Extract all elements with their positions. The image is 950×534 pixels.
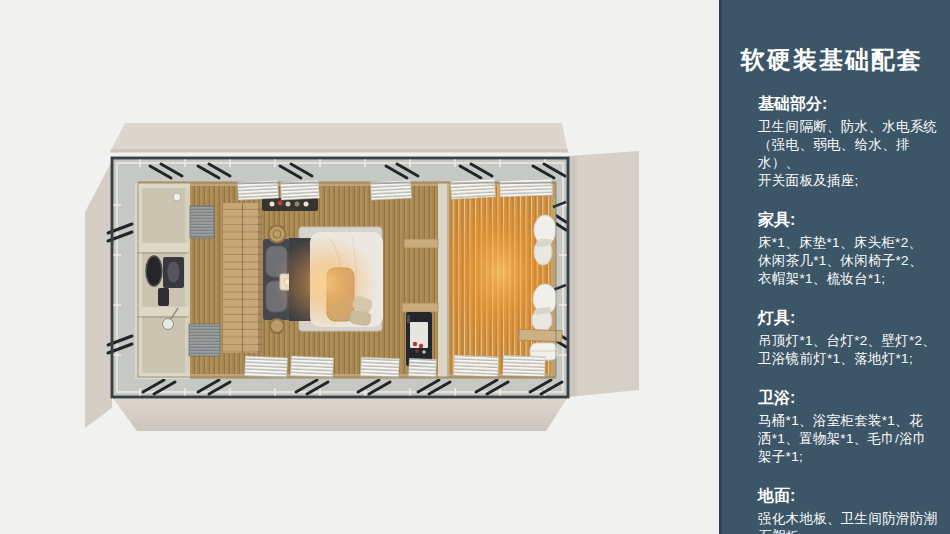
- section-basics: 基础部分: 卫生间隔断、防水、水电系统 （强电、弱电、给水、排水）、 开关面板及…: [758, 94, 938, 190]
- wicker-basket: [269, 226, 286, 243]
- section-flooring: 地面: 强化木地板、卫生间防滑防潮 石塑板;: [758, 486, 938, 534]
- shower-head: [163, 319, 174, 330]
- section-heading: 灯具:: [758, 308, 938, 328]
- minibar-cabinet: [406, 312, 432, 366]
- section-heading: 地面:: [758, 486, 938, 506]
- louver-panel: [189, 324, 220, 356]
- section-body: 强化木地板、卫生间防滑防潮 石塑板;: [758, 510, 938, 534]
- info-panel: 软硬装基础配套 基础部分: 卫生间隔断、防水、水电系统 （强电、弱电、给水、排水…: [719, 0, 950, 534]
- wicker-basket: [270, 319, 284, 333]
- vanity-mirror: [146, 256, 162, 286]
- infographic: 软硬装基础配套 基础部分: 卫生间隔断、防水、水电系统 （强电、弱电、给水、排水…: [0, 0, 950, 534]
- wall-shelf: [404, 239, 438, 248]
- bath-stool: [158, 288, 169, 306]
- section-body: 吊顶灯*1、台灯*2、壁灯*2、 卫浴镜前灯*1、落地灯*1;: [758, 332, 938, 368]
- section-body: 床*1、床垫*1、床头柜*2、 休闲茶几*1、休闲椅子*2、 衣帽架*1、梳妆台…: [758, 234, 938, 288]
- floor-plan: [0, 0, 719, 534]
- section-heading: 家具:: [758, 210, 938, 230]
- page-title: 软硬装基础配套: [741, 46, 936, 74]
- section-bathroom: 卫浴: 马桶*1、浴室柜套装*1、花 洒*1、置物架*1、毛巾/浴巾 架子*1;: [758, 388, 938, 466]
- section-heading: 基础部分:: [758, 94, 938, 114]
- spec-sections: 基础部分: 卫生间隔断、防水、水电系统 （强电、弱电、给水、排水）、 开关面板及…: [722, 94, 950, 534]
- clothes-rack: [262, 198, 318, 211]
- section-lighting: 灯具: 吊顶灯*1、台灯*2、壁灯*2、 卫浴镜前灯*1、落地灯*1;: [758, 308, 938, 368]
- towel-hook: [173, 193, 181, 201]
- louver-panel: [190, 206, 214, 238]
- section-body: 卫生间隔断、防水、水电系统 （强电、弱电、给水、排水）、 开关面板及插座;: [758, 118, 938, 190]
- bathroom: [135, 183, 190, 379]
- bed: [263, 226, 383, 334]
- section-heading: 卫浴:: [758, 388, 938, 408]
- wall-shelf: [402, 303, 438, 312]
- section-furniture: 家具: 床*1、床垫*1、床头柜*2、 休闲茶几*1、休闲椅子*2、 衣帽架*1…: [758, 210, 938, 288]
- headboard-panel: [223, 203, 262, 353]
- section-body: 马桶*1、浴室柜套装*1、花 洒*1、置物架*1、毛巾/浴巾 架子*1;: [758, 412, 938, 466]
